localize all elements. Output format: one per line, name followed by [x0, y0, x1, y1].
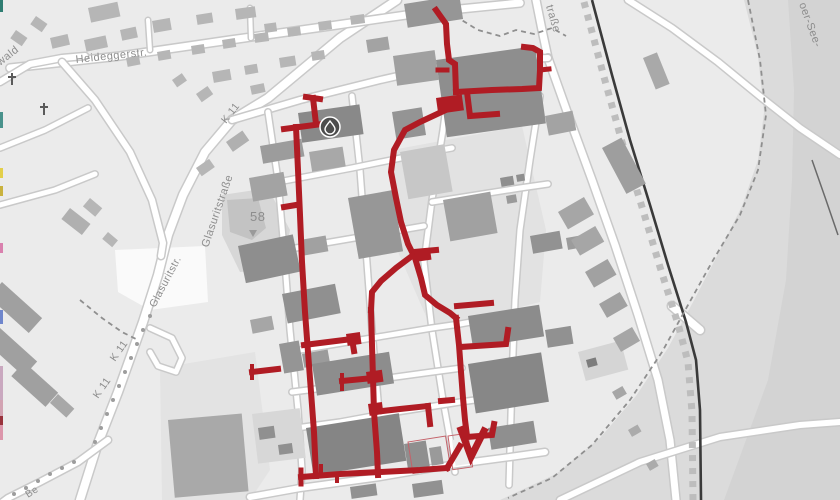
edge-color-chip — [0, 243, 3, 253]
building — [393, 50, 439, 86]
building — [400, 144, 453, 199]
tree-dot — [129, 356, 133, 360]
network-node — [414, 248, 432, 262]
building — [404, 441, 430, 470]
building — [287, 26, 301, 37]
network-node — [366, 370, 384, 384]
edge-color-chip — [0, 112, 3, 128]
network-node — [346, 332, 362, 346]
tree-dot — [111, 398, 115, 402]
tree-dot — [148, 314, 152, 318]
tree-dot — [12, 492, 16, 496]
edge-color-chip — [0, 168, 3, 178]
heating-network-segment — [428, 406, 430, 424]
edge-color-chip — [0, 400, 3, 416]
tree-dot — [36, 479, 40, 483]
heating-network-segment — [284, 205, 296, 207]
tree-dot — [99, 426, 103, 430]
edge-color-chip — [0, 425, 3, 440]
building — [506, 194, 517, 204]
road-stub-north-1 — [148, 20, 150, 50]
tree-dot — [135, 342, 139, 346]
heating-network-segment — [313, 98, 316, 124]
building — [264, 22, 277, 33]
edge-color-chip — [0, 186, 3, 196]
tree-dot — [48, 472, 52, 476]
heating-network-segment — [457, 303, 491, 306]
building — [278, 443, 293, 455]
heating-network-segment — [252, 369, 278, 372]
tree-dot — [60, 466, 64, 470]
heating-network-segment — [540, 69, 549, 70]
building — [258, 426, 276, 440]
tree-dot — [117, 384, 121, 388]
heating-network-segment — [306, 97, 320, 99]
tree-dot — [72, 460, 76, 464]
tree-dot — [105, 412, 109, 416]
building — [516, 174, 525, 182]
building — [318, 20, 332, 31]
edge-color-chip — [0, 310, 3, 324]
heating-network-segment — [371, 310, 374, 412]
edge-color-chip — [0, 366, 3, 400]
map-svg[interactable]: Heideggerstr.waldtraßeoer-See-Glasuritst… — [0, 0, 840, 500]
building — [168, 414, 249, 498]
tree-dot — [123, 370, 127, 374]
heating-network-segment — [374, 412, 378, 475]
edge-color-chip — [0, 0, 3, 12]
network-node — [368, 402, 384, 416]
street-label: 58 — [250, 209, 265, 224]
tree-dot — [141, 328, 145, 332]
edge-color-chip — [0, 416, 3, 425]
heating-network-segment — [441, 400, 452, 401]
building — [443, 192, 498, 242]
map-canvas[interactable]: Heideggerstr.waldtraßeoer-See-Glasuritst… — [0, 0, 840, 500]
tree-dot — [93, 440, 97, 444]
